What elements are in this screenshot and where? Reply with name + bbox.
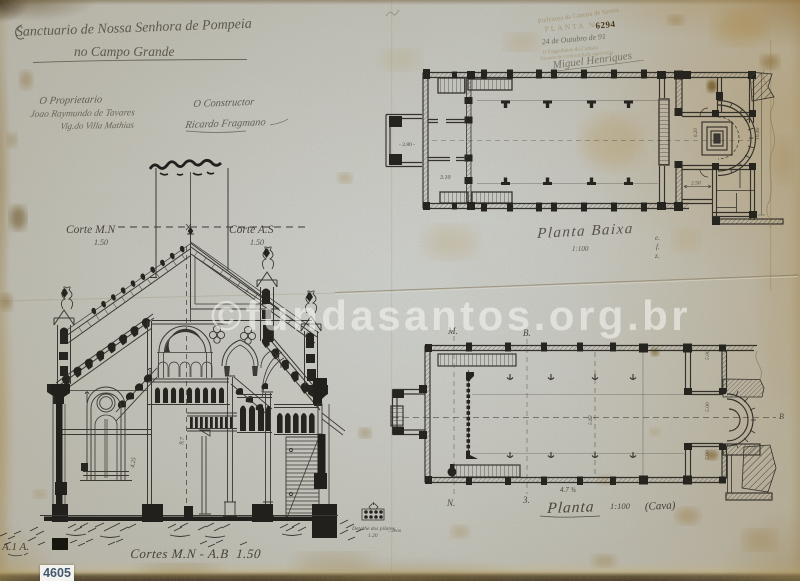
svg-text:5.00: 5.00 [705, 350, 711, 360]
svg-text:Corte A.S: Corte A.S [229, 224, 274, 236]
svg-text:1.50: 1.50 [250, 238, 264, 247]
svg-text:Corte M.N: Corte M.N [66, 224, 117, 236]
svg-text:B: B [779, 412, 784, 421]
svg-text:2.50: 2.50 [691, 181, 701, 187]
svg-text:(Cava): (Cava) [645, 499, 676, 513]
svg-text:no Campo Grande: no Campo Grande [74, 44, 175, 59]
svg-text:1.50: 1.50 [94, 238, 108, 247]
svg-text:5.00: 5.00 [705, 402, 711, 412]
svg-text:f.: f. [656, 243, 660, 251]
svg-text:Vig.do Villa Mathias: Vig.do Villa Mathias [60, 120, 136, 131]
svg-text:6294: 6294 [595, 19, 616, 31]
svg-text:1.20: 1.20 [368, 533, 378, 539]
svg-text:1:100: 1:100 [610, 501, 631, 511]
svg-text:10.40: 10.40 [754, 127, 761, 140]
svg-text:5.82: 5.82 [588, 415, 594, 425]
svg-text:3.: 3. [522, 495, 530, 505]
svg-text:Planta: Planta [546, 498, 595, 517]
svg-text:N.: N. [446, 498, 455, 508]
svg-text:- 2.80 -: - 2.80 - [399, 142, 415, 148]
svg-text:O Proprietario: O Proprietario [39, 94, 103, 107]
svg-text:1:100: 1:100 [572, 245, 589, 253]
svg-text:6.20: 6.20 [694, 128, 699, 137]
svg-text:e.: e. [655, 234, 660, 242]
svg-text:4.7 ¾: 4.7 ¾ [560, 486, 577, 494]
svg-text:Cortes M.N - A.B 1.50: Cortes M.N - A.B 1.50 [130, 546, 262, 561]
svg-text:5.00: 5.00 [705, 450, 711, 460]
svg-text:A.1 A.: A.1 A. [1, 541, 29, 553]
svg-text:Joao Raymundo de Tavares: Joao Raymundo de Tavares [30, 107, 136, 120]
svg-text:z.: z. [654, 252, 660, 260]
svg-text:...leos: ...leos [388, 528, 401, 534]
svg-text:O Constructor: O Constructor [193, 97, 256, 110]
svg-text:3.10: 3.10 [439, 175, 451, 181]
